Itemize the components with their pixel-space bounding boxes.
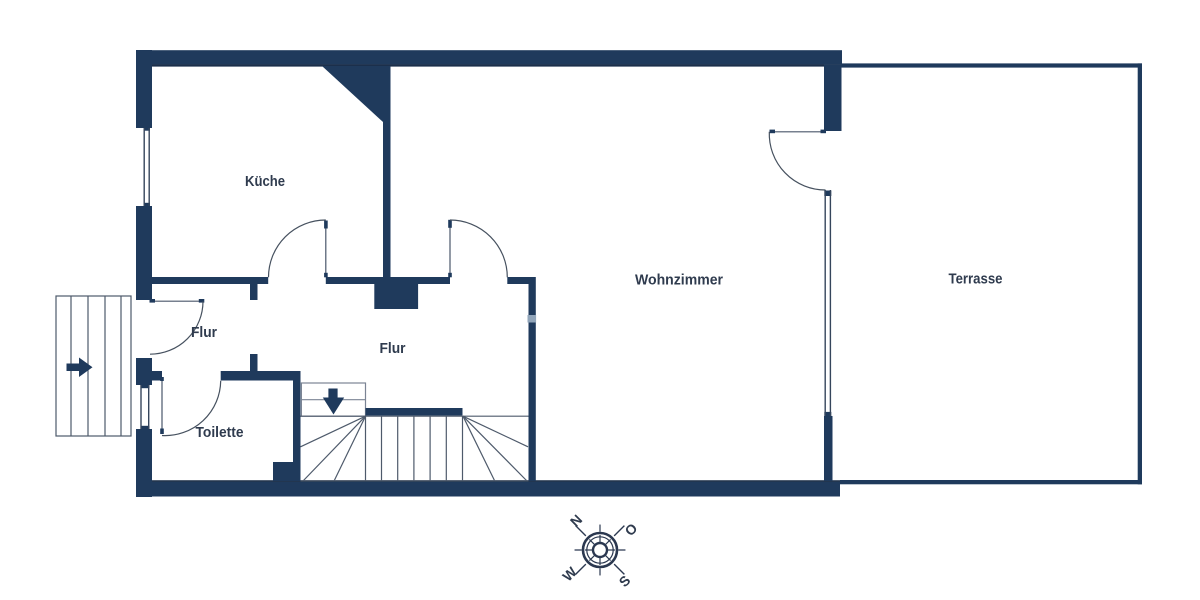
svg-text:Küche: Küche [245, 173, 285, 190]
svg-text:Flur: Flur [380, 340, 406, 357]
svg-text:Wohnzimmer: Wohnzimmer [635, 272, 723, 289]
svg-text:Terrasse: Terrasse [949, 271, 1003, 288]
svg-text:Flur: Flur [191, 324, 217, 341]
svg-text:Toilette: Toilette [196, 424, 244, 441]
